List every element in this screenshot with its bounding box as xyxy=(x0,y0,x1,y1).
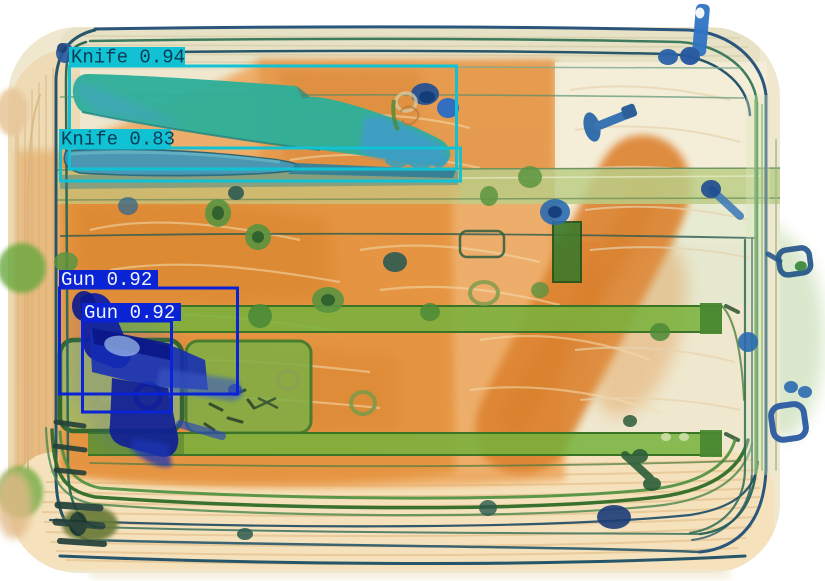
svg-text:Knife 0.83: Knife 0.83 xyxy=(61,129,175,151)
svg-text:Gun 0.92: Gun 0.92 xyxy=(84,302,175,324)
svg-text:Knife 0.94: Knife 0.94 xyxy=(71,47,185,69)
svg-text:Gun 0.92: Gun 0.92 xyxy=(61,269,152,291)
